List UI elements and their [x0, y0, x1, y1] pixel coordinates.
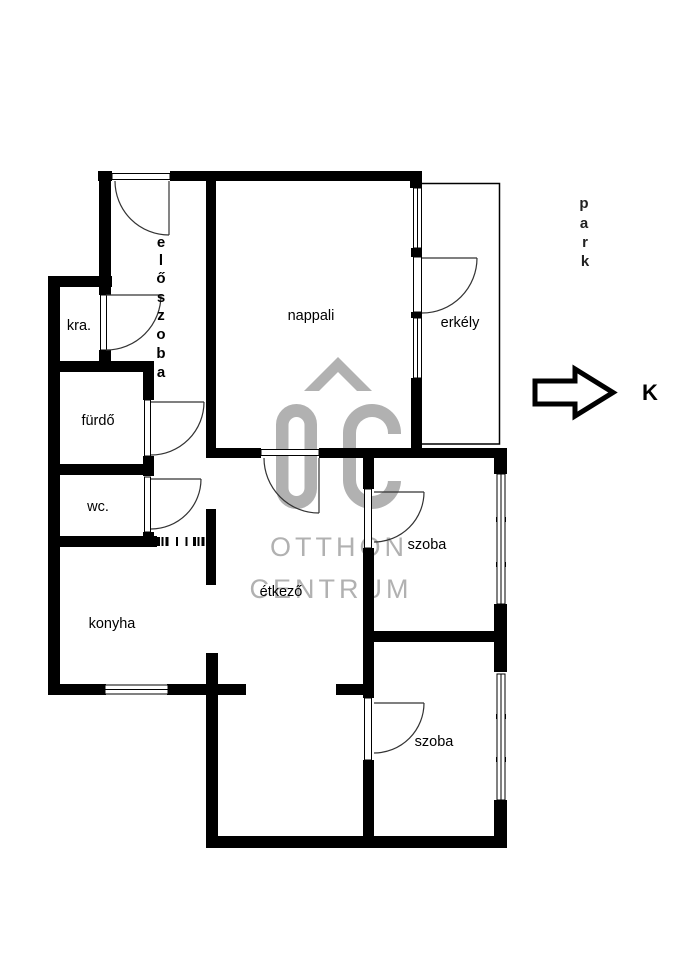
svg-text:konyha: konyha — [89, 616, 137, 632]
svg-text:K: K — [642, 380, 658, 405]
svg-text:a: a — [580, 215, 589, 232]
svg-text:wc.: wc. — [86, 499, 109, 515]
svg-text:z: z — [157, 307, 165, 324]
svg-text:fürdő: fürdő — [81, 413, 114, 429]
svg-text:nappali: nappali — [288, 308, 335, 324]
svg-text:o: o — [156, 326, 165, 343]
svg-text:szoba: szoba — [408, 537, 448, 553]
svg-text:a: a — [157, 364, 166, 381]
svg-text:OTTHON: OTTHON — [270, 532, 408, 562]
svg-text:ő: ő — [156, 270, 165, 287]
svg-text:p: p — [579, 195, 588, 212]
svg-text:r: r — [582, 234, 588, 251]
svg-text:kra.: kra. — [67, 318, 91, 334]
svg-text:erkély: erkély — [441, 315, 480, 331]
svg-text:b: b — [156, 345, 165, 362]
svg-text:s: s — [157, 289, 165, 306]
svg-text:szoba: szoba — [415, 734, 455, 750]
svg-text:l: l — [159, 252, 163, 269]
svg-text:k: k — [581, 253, 590, 270]
svg-text:étkező: étkező — [260, 584, 303, 600]
svg-text:e: e — [157, 234, 165, 251]
